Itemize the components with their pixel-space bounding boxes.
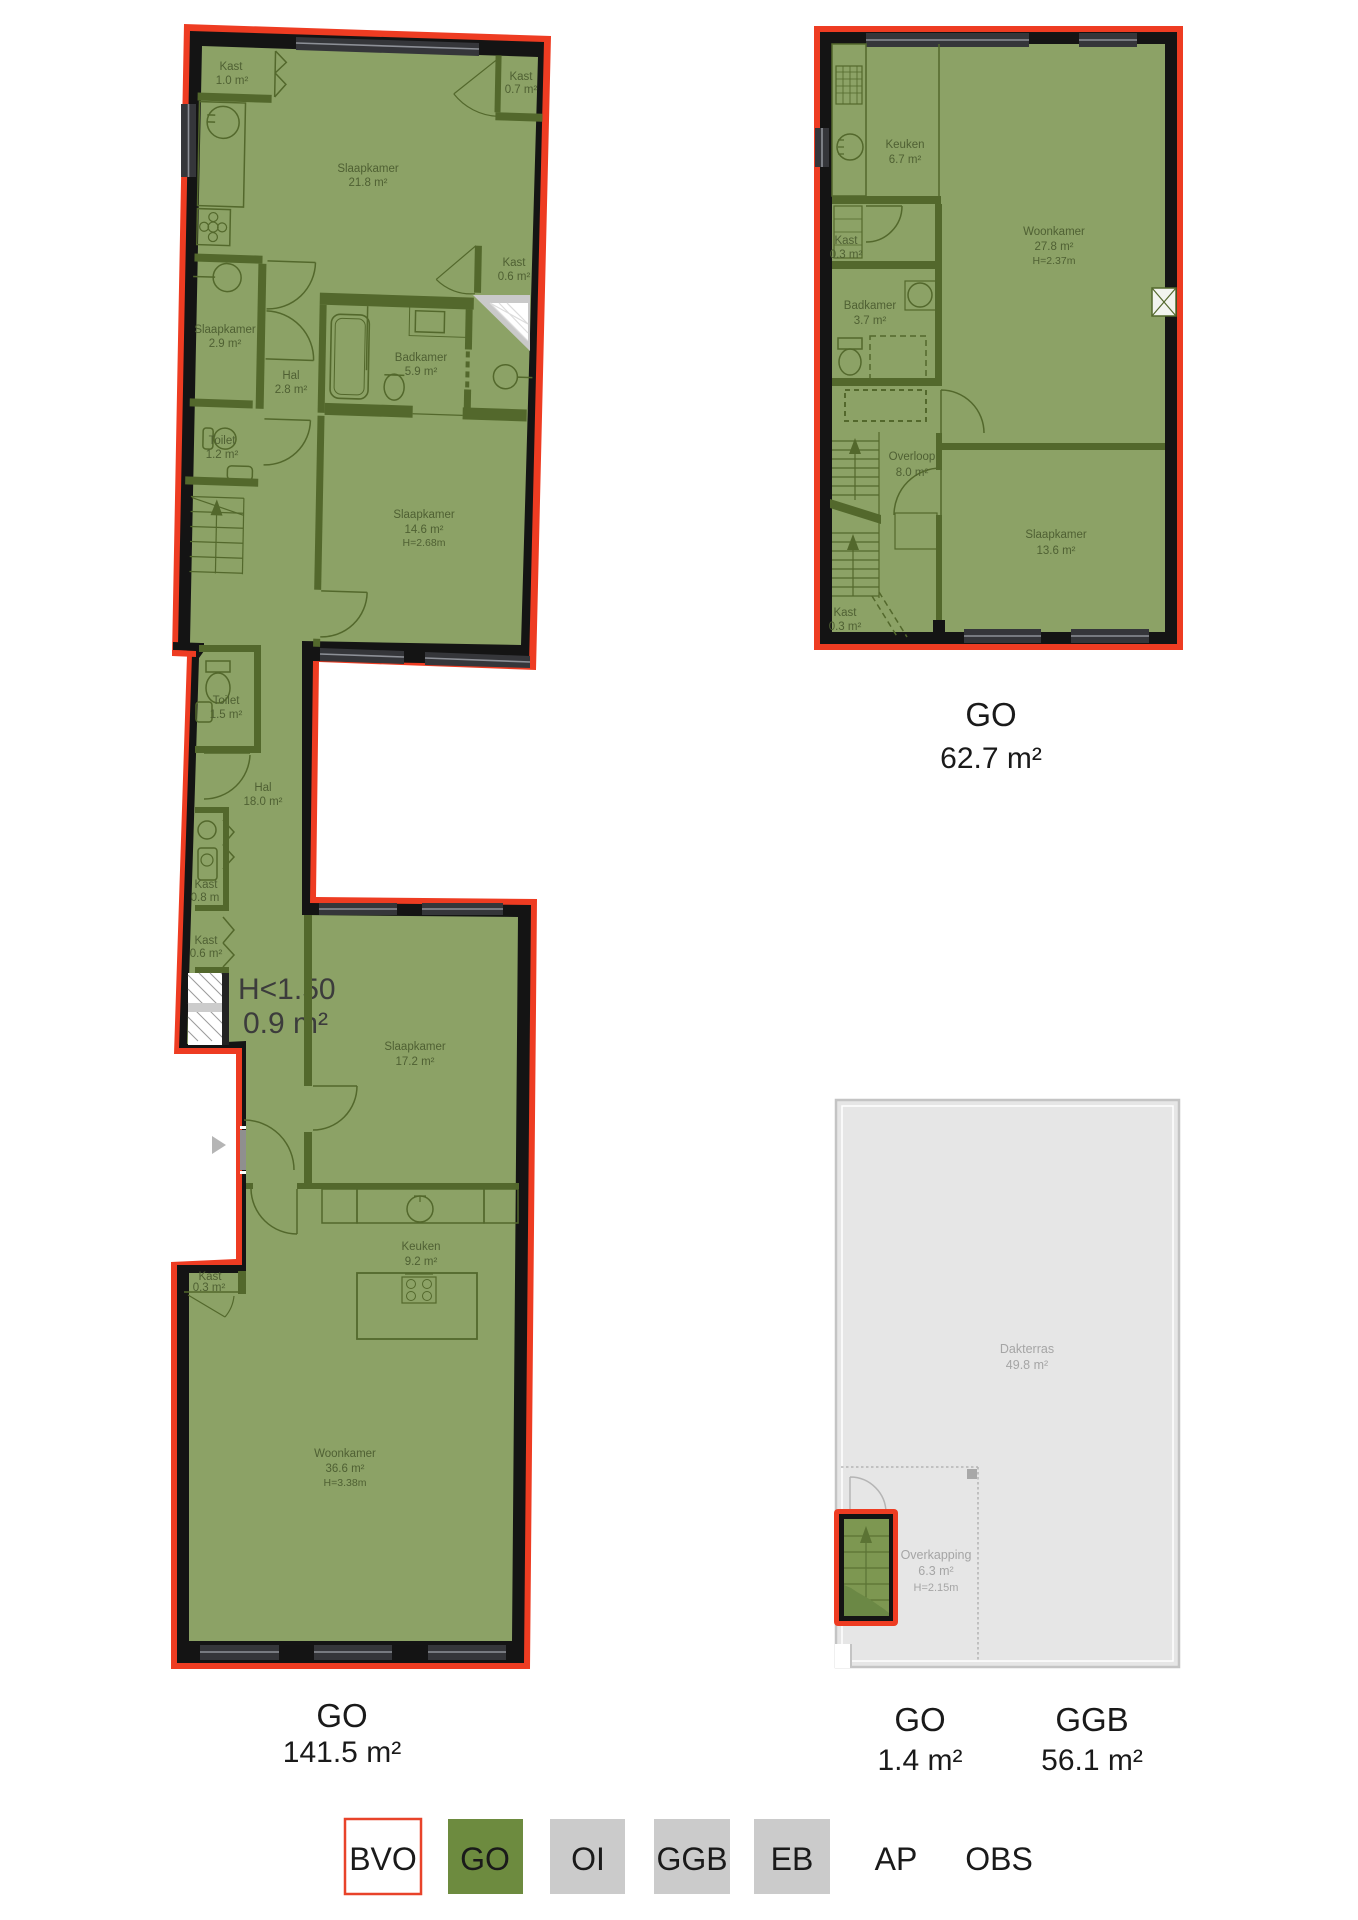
svg-text:GGB: GGB — [1055, 1701, 1128, 1738]
svg-text:Badkamer: Badkamer — [844, 300, 897, 312]
svg-text:Kast: Kast — [194, 935, 218, 947]
svg-text:27.8 m²: 27.8 m² — [1035, 241, 1074, 253]
svg-text:1.2 m²: 1.2 m² — [206, 449, 239, 461]
svg-text:Slaapkamer: Slaapkamer — [1025, 529, 1087, 541]
svg-text:H<1.50: H<1.50 — [238, 973, 336, 1006]
svg-text:Slaapkamer: Slaapkamer — [393, 509, 455, 521]
svg-text:Kast: Kast — [833, 607, 857, 619]
svg-text:14.6 m²: 14.6 m² — [405, 524, 444, 536]
svg-text:13.6 m²: 13.6 m² — [1037, 545, 1076, 557]
svg-text:Hal: Hal — [254, 782, 271, 794]
svg-text:0.8 m: 0.8 m — [191, 892, 220, 904]
svg-text:6.7 m²: 6.7 m² — [889, 154, 922, 166]
svg-text:0.7 m²: 0.7 m² — [505, 84, 538, 96]
svg-text:GO: GO — [460, 1841, 510, 1877]
svg-text:EB: EB — [771, 1841, 814, 1877]
svg-text:0.3 m²: 0.3 m² — [830, 249, 863, 261]
svg-text:H=3.38m: H=3.38m — [324, 1477, 367, 1489]
svg-text:0.9 m²: 0.9 m² — [243, 1007, 328, 1040]
svg-text:H=2.37m: H=2.37m — [1033, 255, 1076, 267]
svg-text:Kast: Kast — [509, 71, 533, 83]
svg-text:8.0 m²: 8.0 m² — [896, 467, 929, 479]
svg-text:49.8 m²: 49.8 m² — [1006, 1358, 1048, 1372]
svg-text:Slaapkamer: Slaapkamer — [194, 324, 256, 336]
svg-text:Kast: Kast — [834, 235, 858, 247]
svg-text:18.0 m²: 18.0 m² — [244, 796, 283, 808]
svg-text:AP: AP — [875, 1841, 918, 1877]
svg-text:0.3 m²: 0.3 m² — [829, 621, 862, 633]
svg-text:36.6 m²: 36.6 m² — [326, 1463, 365, 1475]
svg-text:Hal: Hal — [282, 370, 299, 382]
svg-text:Keuken: Keuken — [885, 139, 924, 151]
svg-text:62.7 m²: 62.7 m² — [940, 742, 1042, 775]
svg-text:3.7 m²: 3.7 m² — [854, 315, 887, 327]
svg-text:GGB: GGB — [656, 1841, 727, 1877]
svg-text:56.1 m²: 56.1 m² — [1041, 1744, 1143, 1777]
svg-text:1.0 m²: 1.0 m² — [216, 75, 249, 87]
svg-text:0.3 m²: 0.3 m² — [193, 1282, 226, 1294]
svg-text:Dakterras: Dakterras — [1000, 1342, 1054, 1356]
svg-text:Kast: Kast — [219, 61, 243, 73]
svg-text:BVO: BVO — [349, 1841, 417, 1877]
svg-text:1.5 m²: 1.5 m² — [210, 709, 243, 721]
svg-text:141.5 m²: 141.5 m² — [283, 1736, 401, 1769]
svg-text:9.2 m²: 9.2 m² — [405, 1256, 438, 1268]
svg-text:2.9 m²: 2.9 m² — [209, 338, 242, 350]
svg-text:Badkamer: Badkamer — [395, 352, 448, 364]
svg-text:Woonkamer: Woonkamer — [1023, 226, 1085, 238]
svg-text:GO: GO — [894, 1701, 945, 1738]
svg-text:6.3 m²: 6.3 m² — [918, 1564, 953, 1578]
svg-text:GO: GO — [965, 696, 1016, 733]
svg-text:0.6 m²: 0.6 m² — [190, 948, 223, 960]
svg-text:2.8 m²: 2.8 m² — [275, 384, 308, 396]
svg-text:Keuken: Keuken — [401, 1241, 440, 1253]
svg-text:1.4 m²: 1.4 m² — [877, 1744, 962, 1777]
svg-text:5.9 m²: 5.9 m² — [405, 366, 438, 378]
svg-text:Toilet: Toilet — [213, 695, 241, 707]
svg-text:Slaapkamer: Slaapkamer — [384, 1041, 446, 1053]
svg-text:Toilet: Toilet — [209, 435, 237, 447]
svg-text:Overkapping: Overkapping — [901, 1548, 972, 1562]
svg-text:H=2.15m: H=2.15m — [914, 1582, 959, 1594]
svg-text:GO: GO — [316, 1697, 367, 1734]
svg-text:OBS: OBS — [965, 1841, 1033, 1877]
svg-text:17.2 m²: 17.2 m² — [396, 1056, 435, 1068]
svg-text:Overloop: Overloop — [889, 451, 936, 463]
svg-text:Slaapkamer: Slaapkamer — [337, 163, 399, 175]
svg-text:Kast: Kast — [194, 879, 218, 891]
svg-text:H=2.68m: H=2.68m — [403, 537, 446, 549]
svg-text:Woonkamer: Woonkamer — [314, 1448, 376, 1460]
svg-text:21.8 m²: 21.8 m² — [349, 177, 388, 189]
svg-text:Kast: Kast — [502, 257, 526, 269]
svg-text:OI: OI — [571, 1841, 605, 1877]
svg-text:0.6 m²: 0.6 m² — [498, 271, 531, 283]
